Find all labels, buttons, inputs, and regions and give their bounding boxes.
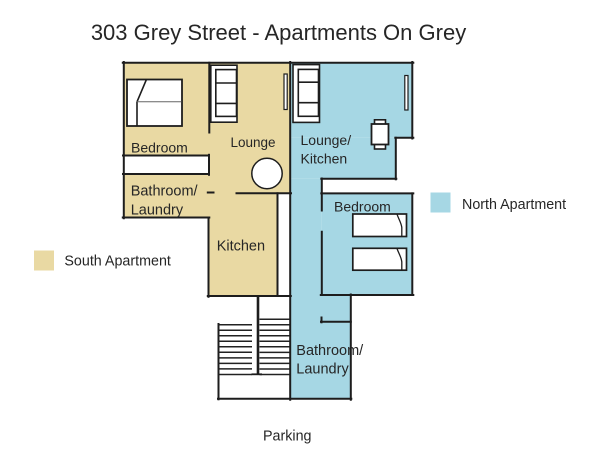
svg-text:303 Grey Street - Apartments O: 303 Grey Street - Apartments On Grey	[91, 20, 466, 45]
svg-text:Bathroom/: Bathroom/	[296, 343, 364, 359]
svg-text:Parking: Parking	[263, 429, 312, 445]
svg-text:Bathroom/: Bathroom/	[131, 184, 199, 200]
svg-text:Laundry: Laundry	[131, 203, 184, 219]
svg-text:South Apartment: South Apartment	[64, 254, 171, 270]
svg-text:Kitchen: Kitchen	[217, 239, 265, 255]
svg-text:Lounge: Lounge	[231, 135, 276, 150]
svg-text:Bedroom: Bedroom	[131, 140, 188, 156]
svg-text:Kitchen: Kitchen	[301, 151, 348, 167]
svg-text:Bedroom: Bedroom	[334, 199, 391, 215]
svg-text:Laundry: Laundry	[296, 361, 349, 377]
svg-text:North Apartment: North Apartment	[462, 197, 566, 213]
svg-text:Lounge/: Lounge/	[301, 132, 352, 148]
